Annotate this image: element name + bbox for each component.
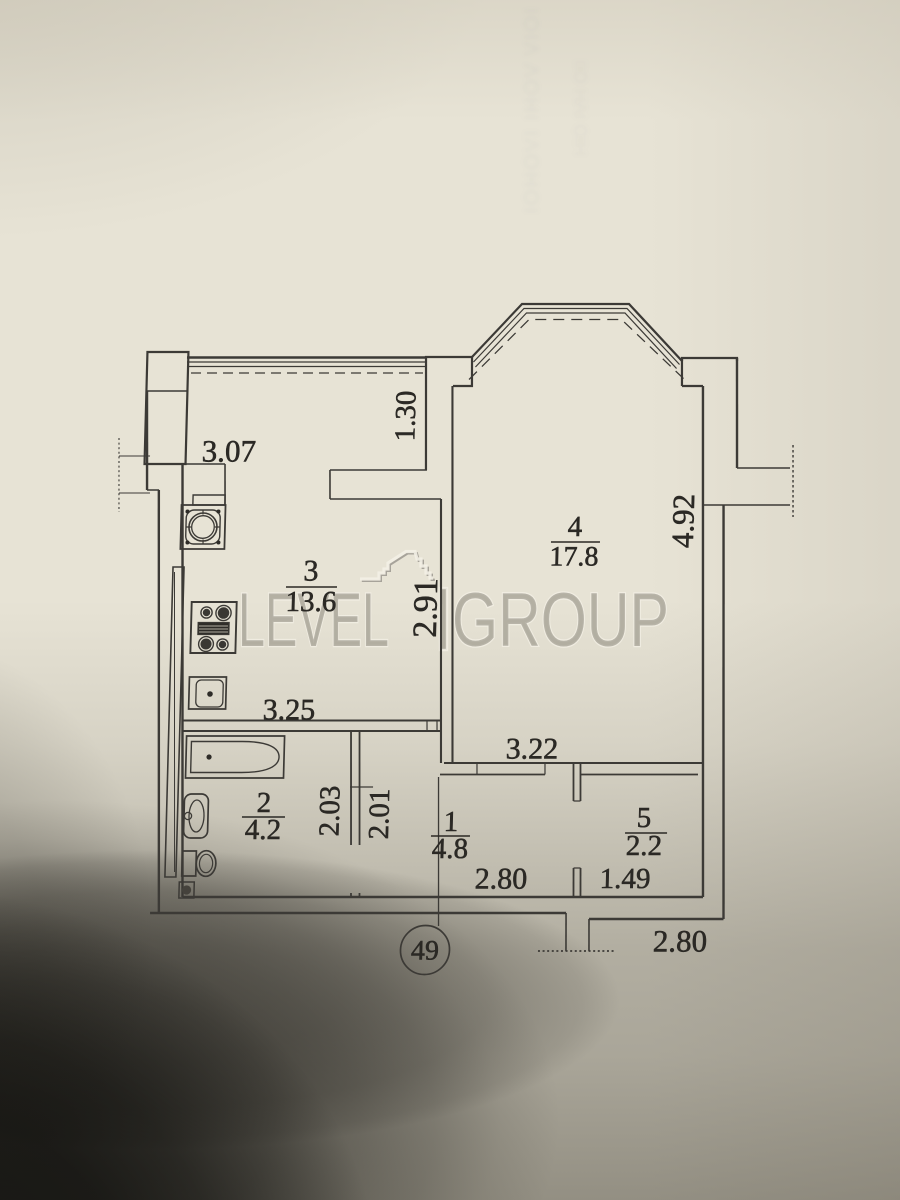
svg-text:2.2: 2.2 <box>625 830 662 862</box>
svg-text:2.80: 2.80 <box>652 924 707 959</box>
svg-text:2.03: 2.03 <box>313 786 346 837</box>
svg-text:1.30: 1.30 <box>389 391 422 442</box>
svg-text:13.6: 13.6 <box>285 586 337 618</box>
svg-text:4.2: 4.2 <box>244 814 281 846</box>
svg-text:49: 49 <box>411 936 440 967</box>
svg-text:4.8: 4.8 <box>431 833 468 865</box>
svg-text:1.49: 1.49 <box>599 863 651 895</box>
svg-text:3.25: 3.25 <box>262 694 315 727</box>
svg-text:2.80: 2.80 <box>474 863 527 896</box>
svg-text:2.91: 2.91 <box>407 578 446 637</box>
svg-text:3: 3 <box>303 555 319 588</box>
svg-text:17.8: 17.8 <box>549 542 599 573</box>
svg-text:4: 4 <box>567 511 583 543</box>
svg-text:2.01: 2.01 <box>363 789 396 840</box>
svg-text:3.07: 3.07 <box>201 434 256 469</box>
svg-text:4.92: 4.92 <box>665 494 701 548</box>
svg-text:GROUP: GROUP <box>452 578 669 663</box>
svg-text:3.22: 3.22 <box>505 733 558 766</box>
